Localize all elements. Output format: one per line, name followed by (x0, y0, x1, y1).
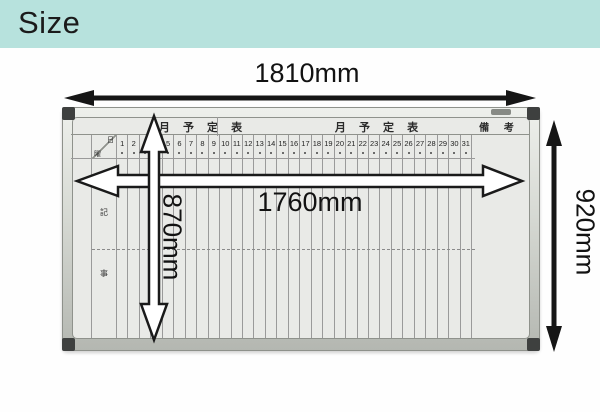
weekday-dot (430, 152, 432, 154)
weekday-dot (178, 152, 180, 154)
section-header: Size (0, 0, 600, 48)
dimension-label-outer-height: 920mm (570, 189, 600, 276)
weekday-dot (213, 152, 215, 154)
weekday-dot (419, 152, 421, 154)
weekday-dot (350, 152, 352, 154)
weekday-dot (339, 152, 341, 154)
outer-width-arrow-icon (62, 88, 538, 108)
date-number: 1 (120, 135, 124, 151)
weekday-dot (121, 152, 123, 154)
date-number: 11 (233, 135, 241, 151)
date-number: 22 (359, 135, 367, 151)
weekday-dot (201, 152, 203, 154)
dimension-label-outer-width: 1810mm (200, 58, 414, 89)
header-divider (217, 117, 218, 136)
weekday-dot (304, 152, 306, 154)
weekday-dot (133, 152, 135, 154)
corner-cap (527, 338, 540, 351)
dimension-label-inner-height: 870mm (157, 194, 188, 281)
date-number: 28 (427, 135, 435, 151)
weekday-dot (282, 152, 284, 154)
date-number: 30 (450, 135, 458, 151)
date-number: 26 (404, 135, 412, 151)
day-weekday-corner-cell: 日 曜 (92, 135, 116, 159)
weekday-dot (190, 152, 192, 154)
date-number: 20 (336, 135, 344, 151)
date-number: 14 (267, 135, 275, 151)
board-title-right: 月 予 定 表 (288, 119, 470, 135)
weekday-dot (293, 152, 295, 154)
date-number: 17 (301, 135, 309, 151)
date-number: 24 (381, 135, 389, 151)
date-number: 13 (255, 135, 263, 151)
date-number: 23 (370, 135, 378, 151)
page-title: Size (18, 5, 80, 41)
date-number: 2 (132, 135, 136, 151)
board-remarks-header: 備 考 (470, 119, 529, 134)
row-label-top: 記 (92, 207, 116, 218)
mount-bracket (491, 109, 511, 115)
outer-height-arrow-icon (540, 118, 570, 354)
weekday-dot (247, 152, 249, 154)
weekday-dot (259, 152, 261, 154)
corner-day-label: 日 (107, 135, 114, 145)
weekday-dot (327, 152, 329, 154)
date-number: 12 (244, 135, 252, 151)
weekday-dot (453, 152, 455, 154)
weekday-dot (362, 152, 364, 154)
date-number: 8 (200, 135, 204, 151)
date-number: 19 (324, 135, 332, 151)
weekday-dot (465, 152, 467, 154)
row-label-bottom: 事 (92, 268, 116, 279)
weekday-dot (236, 152, 238, 154)
date-number: 21 (347, 135, 355, 151)
date-number: 6 (177, 135, 181, 151)
weekday-dot (385, 152, 387, 154)
dimension-label-inner-width: 1760mm (234, 187, 386, 218)
weekday-dot (442, 152, 444, 154)
weekday-dot (224, 152, 226, 154)
date-number: 25 (393, 135, 401, 151)
weekday-dot (373, 152, 375, 154)
date-number: 10 (221, 135, 229, 151)
date-number: 16 (290, 135, 298, 151)
weekday-dot (408, 152, 410, 154)
corner-cap (62, 338, 75, 351)
header-bottom-line (71, 158, 475, 159)
date-number: 15 (278, 135, 286, 151)
date-number: 9 (212, 135, 216, 151)
weekday-dot (396, 152, 398, 154)
date-number: 7 (189, 135, 193, 151)
date-number: 31 (462, 135, 470, 151)
date-number: 18 (313, 135, 321, 151)
date-number: 27 (416, 135, 424, 151)
date-number: 29 (439, 135, 447, 151)
weekday-dot (270, 152, 272, 154)
weekday-dot (316, 152, 318, 154)
size-diagram: Size 1810mm 月 予 定 表 月 予 定 表 備 考 日 曜 記 事 (0, 0, 600, 412)
